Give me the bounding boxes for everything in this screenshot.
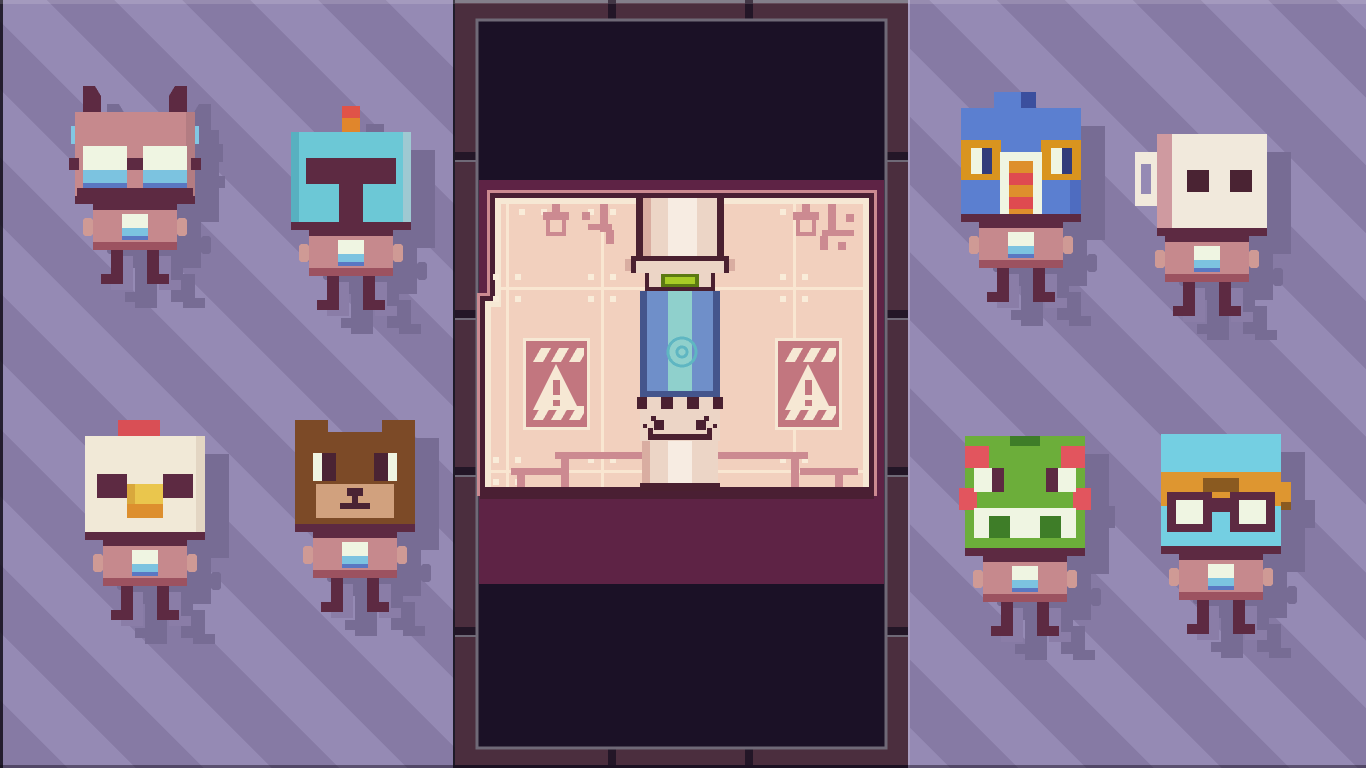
warning-sign-icon bbox=[523, 338, 590, 430]
capsule-green-light bbox=[661, 274, 699, 287]
center-viewport-panel bbox=[455, 0, 908, 768]
character-bird-slot[interactable] bbox=[946, 92, 1096, 310]
mug-sprite bbox=[1132, 110, 1282, 324]
bat-sprite bbox=[60, 82, 210, 292]
robot-sprite bbox=[276, 106, 426, 318]
capsule-room bbox=[477, 190, 877, 499]
capsule-base-face bbox=[637, 397, 723, 491]
warning-sign-icon bbox=[775, 338, 842, 430]
character-robot-slot[interactable] bbox=[276, 106, 426, 318]
character-frog-slot[interactable] bbox=[950, 436, 1100, 644]
capsule-curtain bbox=[640, 291, 720, 397]
character-chicken-slot[interactable] bbox=[70, 420, 220, 628]
frog-sprite bbox=[950, 436, 1100, 644]
character-mug-slot[interactable] bbox=[1132, 110, 1282, 324]
goggles-sprite bbox=[1146, 434, 1296, 642]
character-goggles-slot[interactable] bbox=[1146, 434, 1296, 642]
character-bear-slot[interactable] bbox=[280, 420, 430, 620]
bird-sprite bbox=[946, 92, 1096, 310]
character-bat-slot[interactable] bbox=[60, 82, 210, 292]
game-screen bbox=[0, 0, 1366, 768]
bear-sprite bbox=[280, 420, 430, 620]
chicken-sprite bbox=[70, 420, 220, 628]
